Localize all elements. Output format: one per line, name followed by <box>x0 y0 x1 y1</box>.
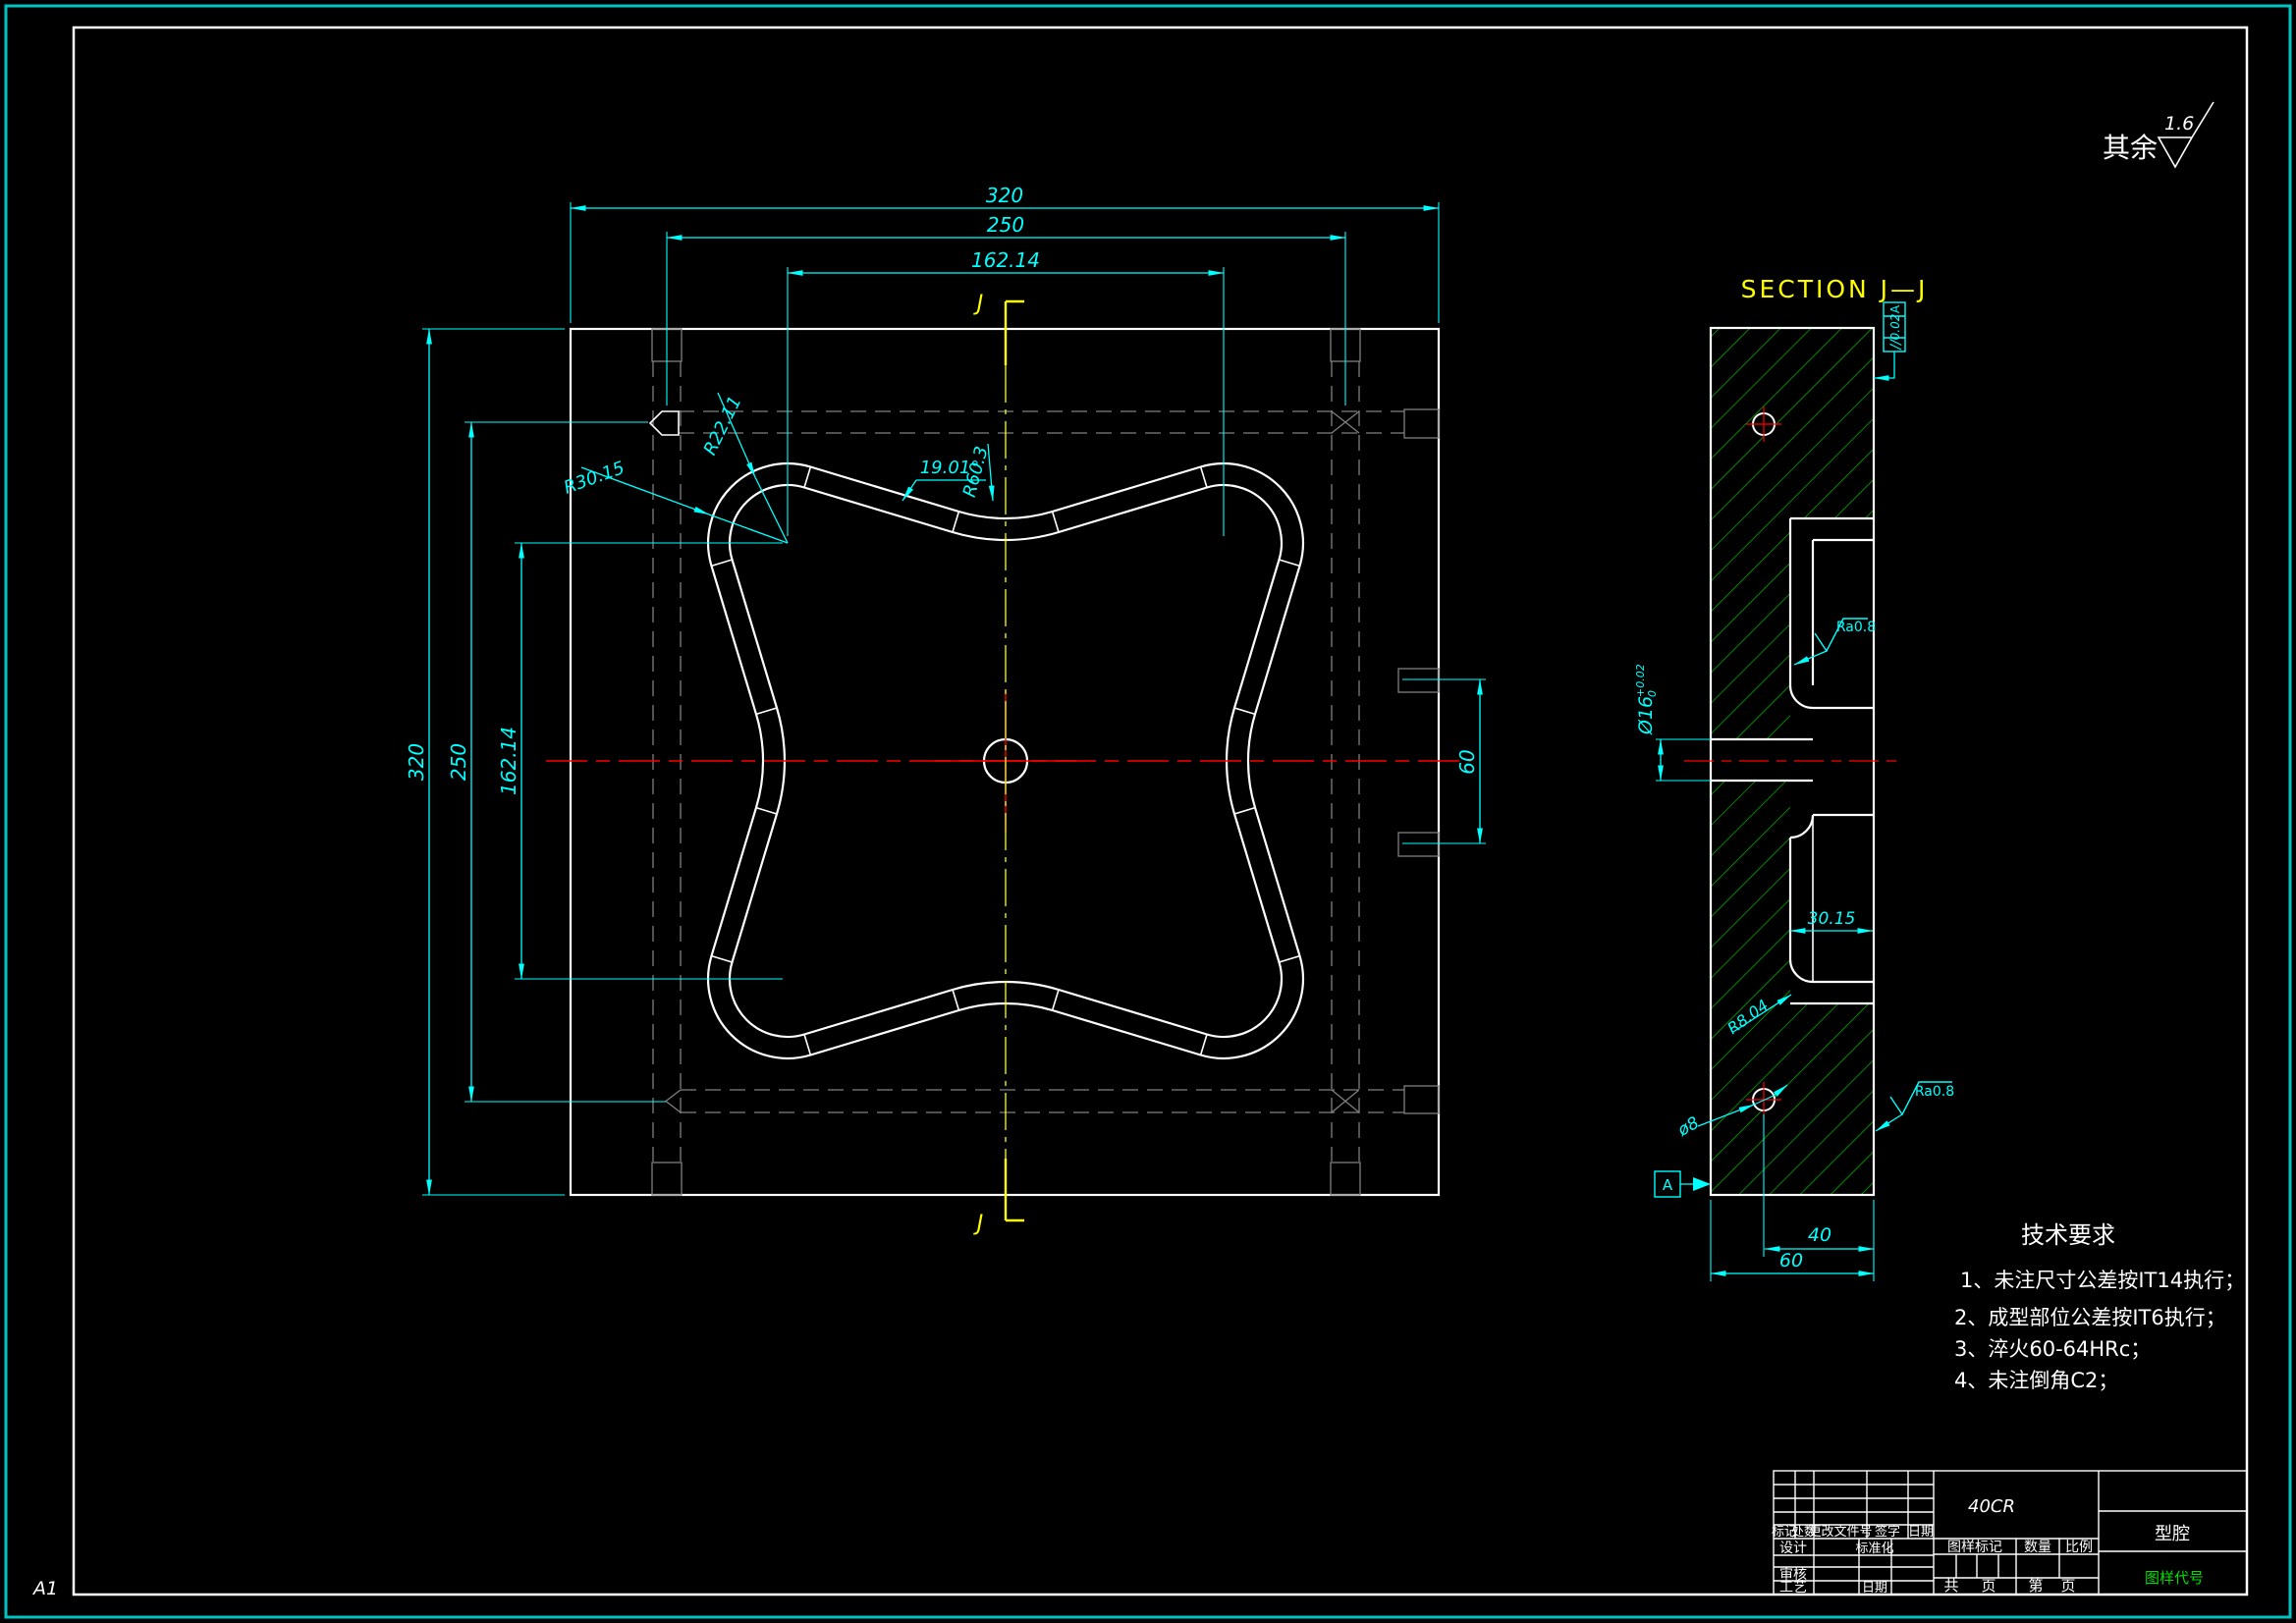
datum-letter: A <box>1663 1176 1673 1194</box>
dim-r60: R60.3 <box>959 444 993 499</box>
tb-drawing-code: 图样代号 <box>2145 1569 2204 1587</box>
tb-process: 工艺 <box>1779 1580 1807 1596</box>
tb-design: 设计 <box>1779 1541 1807 1556</box>
tech-item-1: 1、未注尺寸公差按IT14执行； <box>1960 1269 2245 1292</box>
tb-no: 第 <box>2028 1577 2043 1595</box>
engineering-drawing: A1 其余 1.6 <box>0 0 2296 1623</box>
gdt-value: 0.02 <box>1888 314 1902 341</box>
tb-date2: 日期 <box>1862 1581 1887 1596</box>
section-mark-top: J <box>973 292 984 316</box>
tb-standard: 标准化 <box>1855 1542 1893 1556</box>
surface-note-prefix: 其余 <box>2103 132 2158 164</box>
tb-part-name: 型腔 <box>2155 1524 2190 1544</box>
roughness-triangle-icon <box>2159 102 2214 167</box>
tech-item-4: 4、未注倒角C2； <box>1954 1369 2118 1392</box>
tb-qty: 数量 <box>2024 1540 2051 1555</box>
tb-sign: 签字 <box>1875 1524 1900 1540</box>
hole-dia-text: Ø16 <box>1635 696 1657 735</box>
title-block: 标记 处数 更改文件号 签字 日期 设计 标准化 审核 工艺 日期 40CR 图… <box>1772 1471 2247 1596</box>
dim-depth-3015: 30.15 <box>1808 909 1856 929</box>
surface-finish-note: 其余 1.6 <box>2103 102 2214 167</box>
dim-40: 40 <box>1808 1224 1831 1246</box>
dim-top-250: 250 <box>987 213 1024 237</box>
roughness-callout-2: Ra0.8 <box>1876 1082 1954 1131</box>
outer-teal-border <box>6 6 2290 1617</box>
extension-lines <box>422 202 1486 1195</box>
tech-title: 技术要求 <box>2021 1221 2115 1249</box>
roughness-value-2: Ra0.8 <box>1915 1084 1954 1100</box>
tb-scale: 比例 <box>2065 1540 2093 1555</box>
plan-view: J J 320 250 162.14 320 250 162.14 60 <box>405 184 1486 1236</box>
plate-outline <box>571 329 1439 1195</box>
dimension-lines <box>429 208 1480 1195</box>
dim-right-60: 60 <box>1455 749 1479 774</box>
cad-canvas: A1 其余 1.6 <box>0 0 2296 1623</box>
tb-stamp: 图样标记 <box>1947 1540 2002 1555</box>
drill-tip-pentagon <box>650 411 679 435</box>
dim-60: 60 <box>1779 1250 1803 1271</box>
dim-top-320: 320 <box>986 184 1023 207</box>
tb-material: 40CR <box>1968 1496 2015 1517</box>
gdt-frame: // 0.02 A <box>1874 302 1905 378</box>
tb-page: 页 <box>1981 1577 1995 1595</box>
hidden-channels <box>652 329 1439 1195</box>
drawing-frame <box>74 27 2247 1595</box>
roughness-callout-1: Ra0.8 <box>1794 619 1876 665</box>
gdt-datum-ref: A <box>1888 304 1902 313</box>
section-title: SECTION J—J <box>1741 275 1929 303</box>
dim-r22: R22.11 <box>700 393 746 459</box>
section-mark-bottom: J <box>973 1212 984 1236</box>
dim-left-320: 320 <box>405 743 428 781</box>
sheet-format-label: A1 <box>31 1578 58 1599</box>
tb-date: 日期 <box>1908 1525 1934 1540</box>
hole-dia-dim: Ø16 +0.02 0 <box>1634 664 1659 735</box>
datum-flag: A <box>1655 1171 1711 1197</box>
roughness-value-1: Ra0.8 <box>1836 620 1876 635</box>
dim-top-162: 162.14 <box>971 248 1040 272</box>
dim-left-162: 162.14 <box>497 727 520 795</box>
section-view: SECTION J—J <box>1634 275 1954 1281</box>
technical-requirements: 技术要求 1、未注尺寸公差按IT14执行； 2、成型部位公差按IT6执行； 3、… <box>1954 1221 2245 1392</box>
tb-page2: 页 <box>2060 1577 2075 1595</box>
hole-tol-lower: 0 <box>1646 690 1659 697</box>
dim-left-250: 250 <box>447 743 470 781</box>
surface-note-value: 1.6 <box>2164 113 2194 135</box>
tech-item-2: 2、成型部位公差按IT6执行； <box>1954 1306 2226 1329</box>
tech-item-3: 3、淬火60-64HRc； <box>1954 1337 2151 1361</box>
dim-small-hole: ø8 <box>1673 1113 1702 1142</box>
tb-total: 共 <box>1943 1577 1958 1595</box>
tb-doc: 更改文件号 <box>1808 1525 1872 1540</box>
